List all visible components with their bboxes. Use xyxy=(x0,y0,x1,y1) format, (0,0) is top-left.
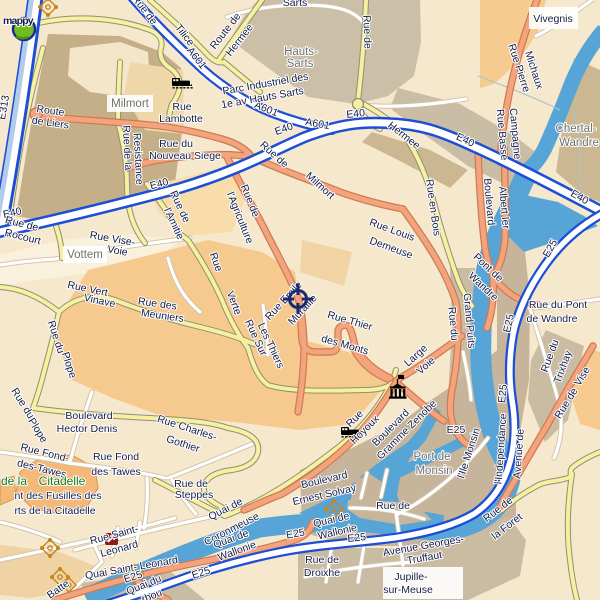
svg-text:mappy: mappy xyxy=(3,15,34,27)
svg-text:rts de la Citadelle: rts de la Citadelle xyxy=(14,505,95,517)
svg-text:Jupille-: Jupille- xyxy=(394,571,428,583)
svg-text:Boulevard: Boulevard xyxy=(65,410,112,422)
svg-text:Lambotte: Lambotte xyxy=(159,113,203,125)
svg-text:E40: E40 xyxy=(346,107,366,121)
svg-text:Sarts: Sarts xyxy=(287,58,314,70)
svg-text:Sarts: Sarts xyxy=(283,0,308,9)
svg-text:de la: de la xyxy=(1,474,27,488)
svg-text:Hauts-: Hauts- xyxy=(284,46,318,58)
svg-text:Rue: Rue xyxy=(172,101,191,113)
svg-text:Vottem: Vottem xyxy=(67,249,103,261)
svg-text:E25: E25 xyxy=(496,384,510,404)
svg-text:Wandre: Wandre xyxy=(559,137,599,149)
svg-text:Monsin: Monsin xyxy=(415,465,452,477)
svg-text:nt des Fusilles des: nt des Fusilles des xyxy=(15,490,102,502)
svg-text:Milmort: Milmort xyxy=(111,98,149,110)
svg-text:Rue de: Rue de xyxy=(376,500,410,512)
svg-text:Hector Denis: Hector Denis xyxy=(57,423,118,435)
svg-text:Rue de: Rue de xyxy=(305,554,339,566)
svg-text:Rue du: Rue du xyxy=(159,138,193,150)
svg-text:Rue du Pont: Rue du Pont xyxy=(529,299,587,311)
svg-text:des Tawes: des Tawes xyxy=(91,466,140,478)
svg-text:Vivegnis: Vivegnis xyxy=(533,13,573,25)
svg-text:E25: E25 xyxy=(447,424,466,436)
svg-text:Rue de: Rue de xyxy=(360,15,373,49)
svg-text:Nouveau Siege: Nouveau Siege xyxy=(149,150,221,162)
svg-text:Droixhe: Droixhe xyxy=(304,567,340,579)
svg-text:Port de: Port de xyxy=(413,451,450,463)
svg-text:Citadelle: Citadelle xyxy=(39,474,86,488)
svg-text:Chertal-: Chertal- xyxy=(556,123,597,135)
svg-text:Steppes: Steppes xyxy=(175,489,214,501)
svg-text:Rue Fond: Rue Fond xyxy=(93,451,139,463)
svg-text:sur-Meuse: sur-Meuse xyxy=(383,584,433,596)
svg-text:de Wandre: de Wandre xyxy=(527,313,578,325)
